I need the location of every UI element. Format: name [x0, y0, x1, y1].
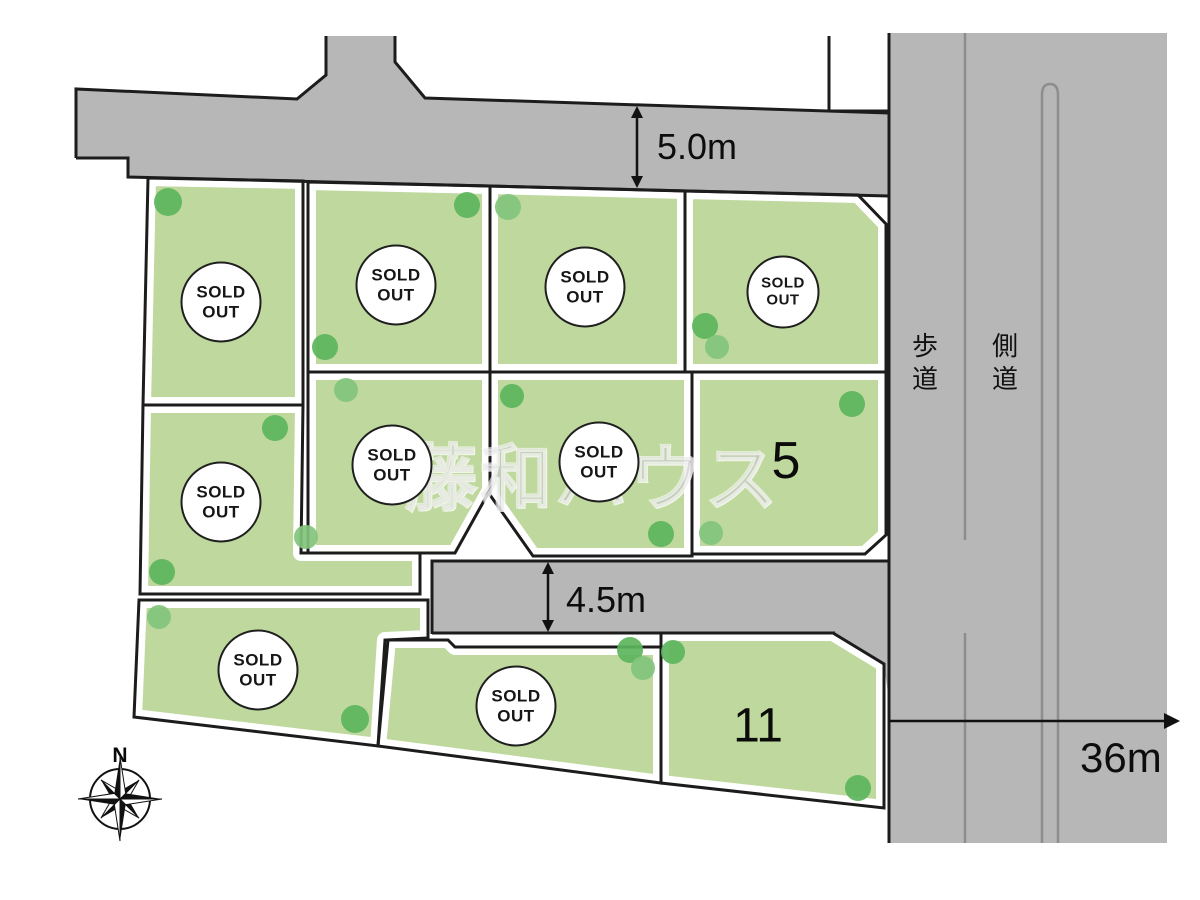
side-road-label: 側道	[986, 332, 1023, 398]
tree-icon	[705, 335, 729, 359]
sold-out-badge: SOLD OUT	[356, 245, 437, 326]
tree-icon	[845, 775, 871, 801]
sold-out-line1: SOLD	[196, 283, 245, 302]
sold-out-badge: SOLD OUT	[545, 247, 626, 328]
tree-icon	[262, 415, 288, 441]
dimension-label-main-road: 36m	[1080, 734, 1162, 782]
sidewalk-label: 歩道	[906, 332, 943, 398]
lot-number-5: 5	[772, 431, 801, 491]
sold-out-badge: SOLD OUT	[476, 666, 557, 747]
tree-icon	[495, 194, 521, 220]
compass-point	[120, 799, 126, 841]
sold-out-badge: SOLD OUT	[352, 425, 433, 506]
compass-icon	[78, 757, 162, 841]
tree-icon	[341, 705, 369, 733]
dimension-label-middle-road: 4.5m	[566, 579, 646, 621]
north-label: N	[112, 744, 127, 768]
dimension-label-top-road: 5.0m	[657, 126, 737, 168]
tree-icon	[631, 656, 655, 680]
sold-out-badge: SOLD OUT	[218, 630, 299, 711]
compass-point	[78, 793, 120, 799]
tree-icon	[334, 378, 358, 402]
tree-icon	[454, 192, 480, 218]
corner-building-outline	[829, 36, 889, 111]
sold-out-badge: SOLD OUT	[747, 256, 820, 329]
sold-out-badge: SOLD OUT	[181, 262, 262, 343]
sold-out-badge: SOLD OUT	[559, 422, 640, 503]
tree-icon	[500, 384, 524, 408]
lot-number-11: 11	[733, 699, 783, 754]
tree-icon	[147, 605, 171, 629]
sold-out-line2: OUT	[202, 302, 239, 321]
tree-icon	[661, 640, 685, 664]
tree-icon	[294, 525, 318, 549]
tree-icon	[312, 334, 338, 360]
sold-out-badge: SOLD OUT	[181, 462, 262, 543]
compass-point	[114, 799, 120, 841]
tree-icon	[154, 188, 182, 216]
road-top-5m	[76, 36, 889, 196]
compass-point	[78, 799, 120, 805]
lot-map-canvas: SOLD OUT SOLD OUT SOLD OUT SOLD OUT SOLD…	[0, 0, 1200, 900]
compass-point	[120, 799, 162, 805]
tree-icon	[692, 313, 718, 339]
tree-icon	[839, 391, 865, 417]
compass-point	[120, 793, 162, 799]
tree-icon	[149, 559, 175, 585]
